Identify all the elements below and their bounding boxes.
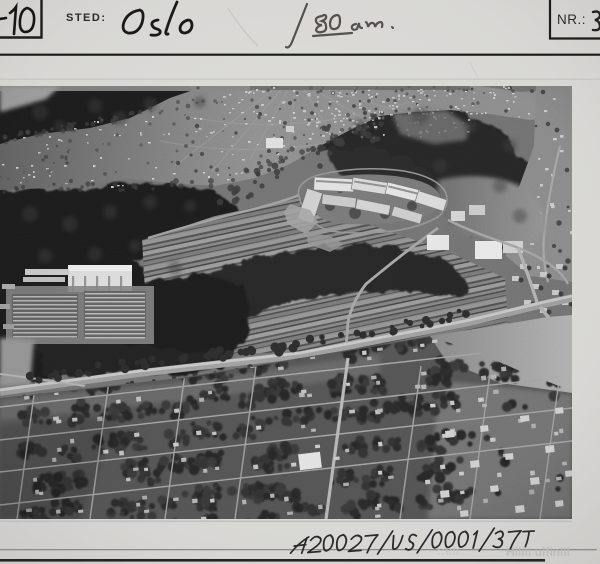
svg-text:Hiliii ulfiniil: Hiliii ulfiniil (506, 545, 570, 559)
svg-text:NR.:: NR.: (557, 12, 586, 27)
svg-text:STED:: STED: (66, 12, 107, 24)
svg-text:::uli: ::uli (437, 544, 459, 558)
